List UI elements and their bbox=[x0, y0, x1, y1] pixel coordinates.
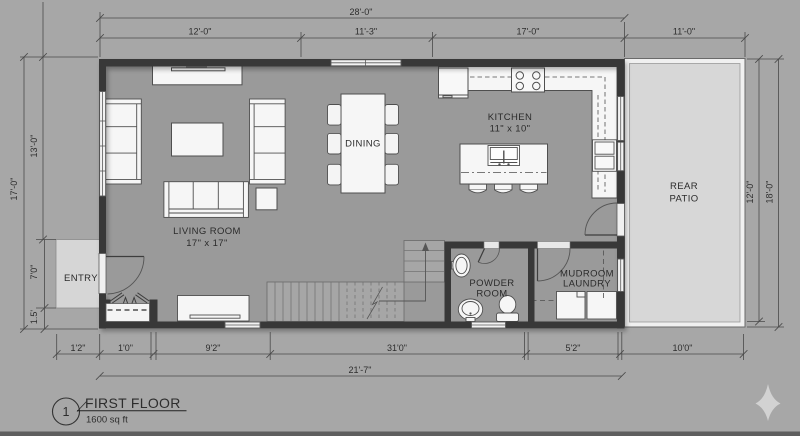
svg-text:17'-0": 17'-0" bbox=[517, 27, 540, 37]
svg-text:KITCHEN: KITCHEN bbox=[488, 112, 533, 123]
svg-text:11'-3": 11'-3" bbox=[355, 27, 377, 37]
svg-text:1600 sq ft: 1600 sq ft bbox=[86, 415, 128, 426]
svg-text:5'2": 5'2" bbox=[566, 343, 581, 353]
svg-text:12'-0": 12'-0" bbox=[745, 181, 755, 204]
svg-text:7'0": 7'0" bbox=[29, 265, 39, 280]
svg-text:PATIO: PATIO bbox=[669, 194, 698, 205]
svg-text:1'0": 1'0" bbox=[118, 343, 133, 353]
svg-text:10'0": 10'0" bbox=[673, 343, 693, 353]
svg-text:21'-7": 21'-7" bbox=[349, 365, 372, 375]
svg-text:ROOM: ROOM bbox=[476, 289, 507, 300]
svg-text:DINING: DINING bbox=[345, 139, 381, 150]
svg-text:1.5': 1.5' bbox=[29, 310, 39, 325]
svg-text:1'2": 1'2" bbox=[71, 343, 86, 353]
svg-text:1: 1 bbox=[63, 405, 70, 419]
svg-text:12'-0": 12'-0" bbox=[189, 27, 212, 37]
svg-text:17'-0": 17'-0" bbox=[9, 178, 19, 201]
svg-text:LIVING ROOM: LIVING ROOM bbox=[173, 226, 241, 237]
svg-text:11" x 10": 11" x 10" bbox=[490, 124, 531, 135]
svg-text:17" x 17": 17" x 17" bbox=[186, 238, 228, 249]
svg-text:LAUNDRY: LAUNDRY bbox=[563, 279, 611, 290]
svg-text:18'-0": 18'-0" bbox=[765, 181, 775, 204]
svg-text:FIRST FLOOR: FIRST FLOOR bbox=[85, 395, 181, 411]
svg-text:POWDER: POWDER bbox=[469, 278, 514, 289]
svg-text:9'2": 9'2" bbox=[206, 343, 221, 353]
svg-text:28'-0": 28'-0" bbox=[350, 7, 373, 17]
svg-text:13'-0": 13'-0" bbox=[29, 135, 39, 158]
svg-text:11'-0": 11'-0" bbox=[673, 27, 695, 37]
svg-text:REAR: REAR bbox=[670, 181, 698, 192]
svg-text:ENTRY: ENTRY bbox=[64, 273, 98, 284]
svg-text:31'0": 31'0" bbox=[387, 343, 407, 353]
